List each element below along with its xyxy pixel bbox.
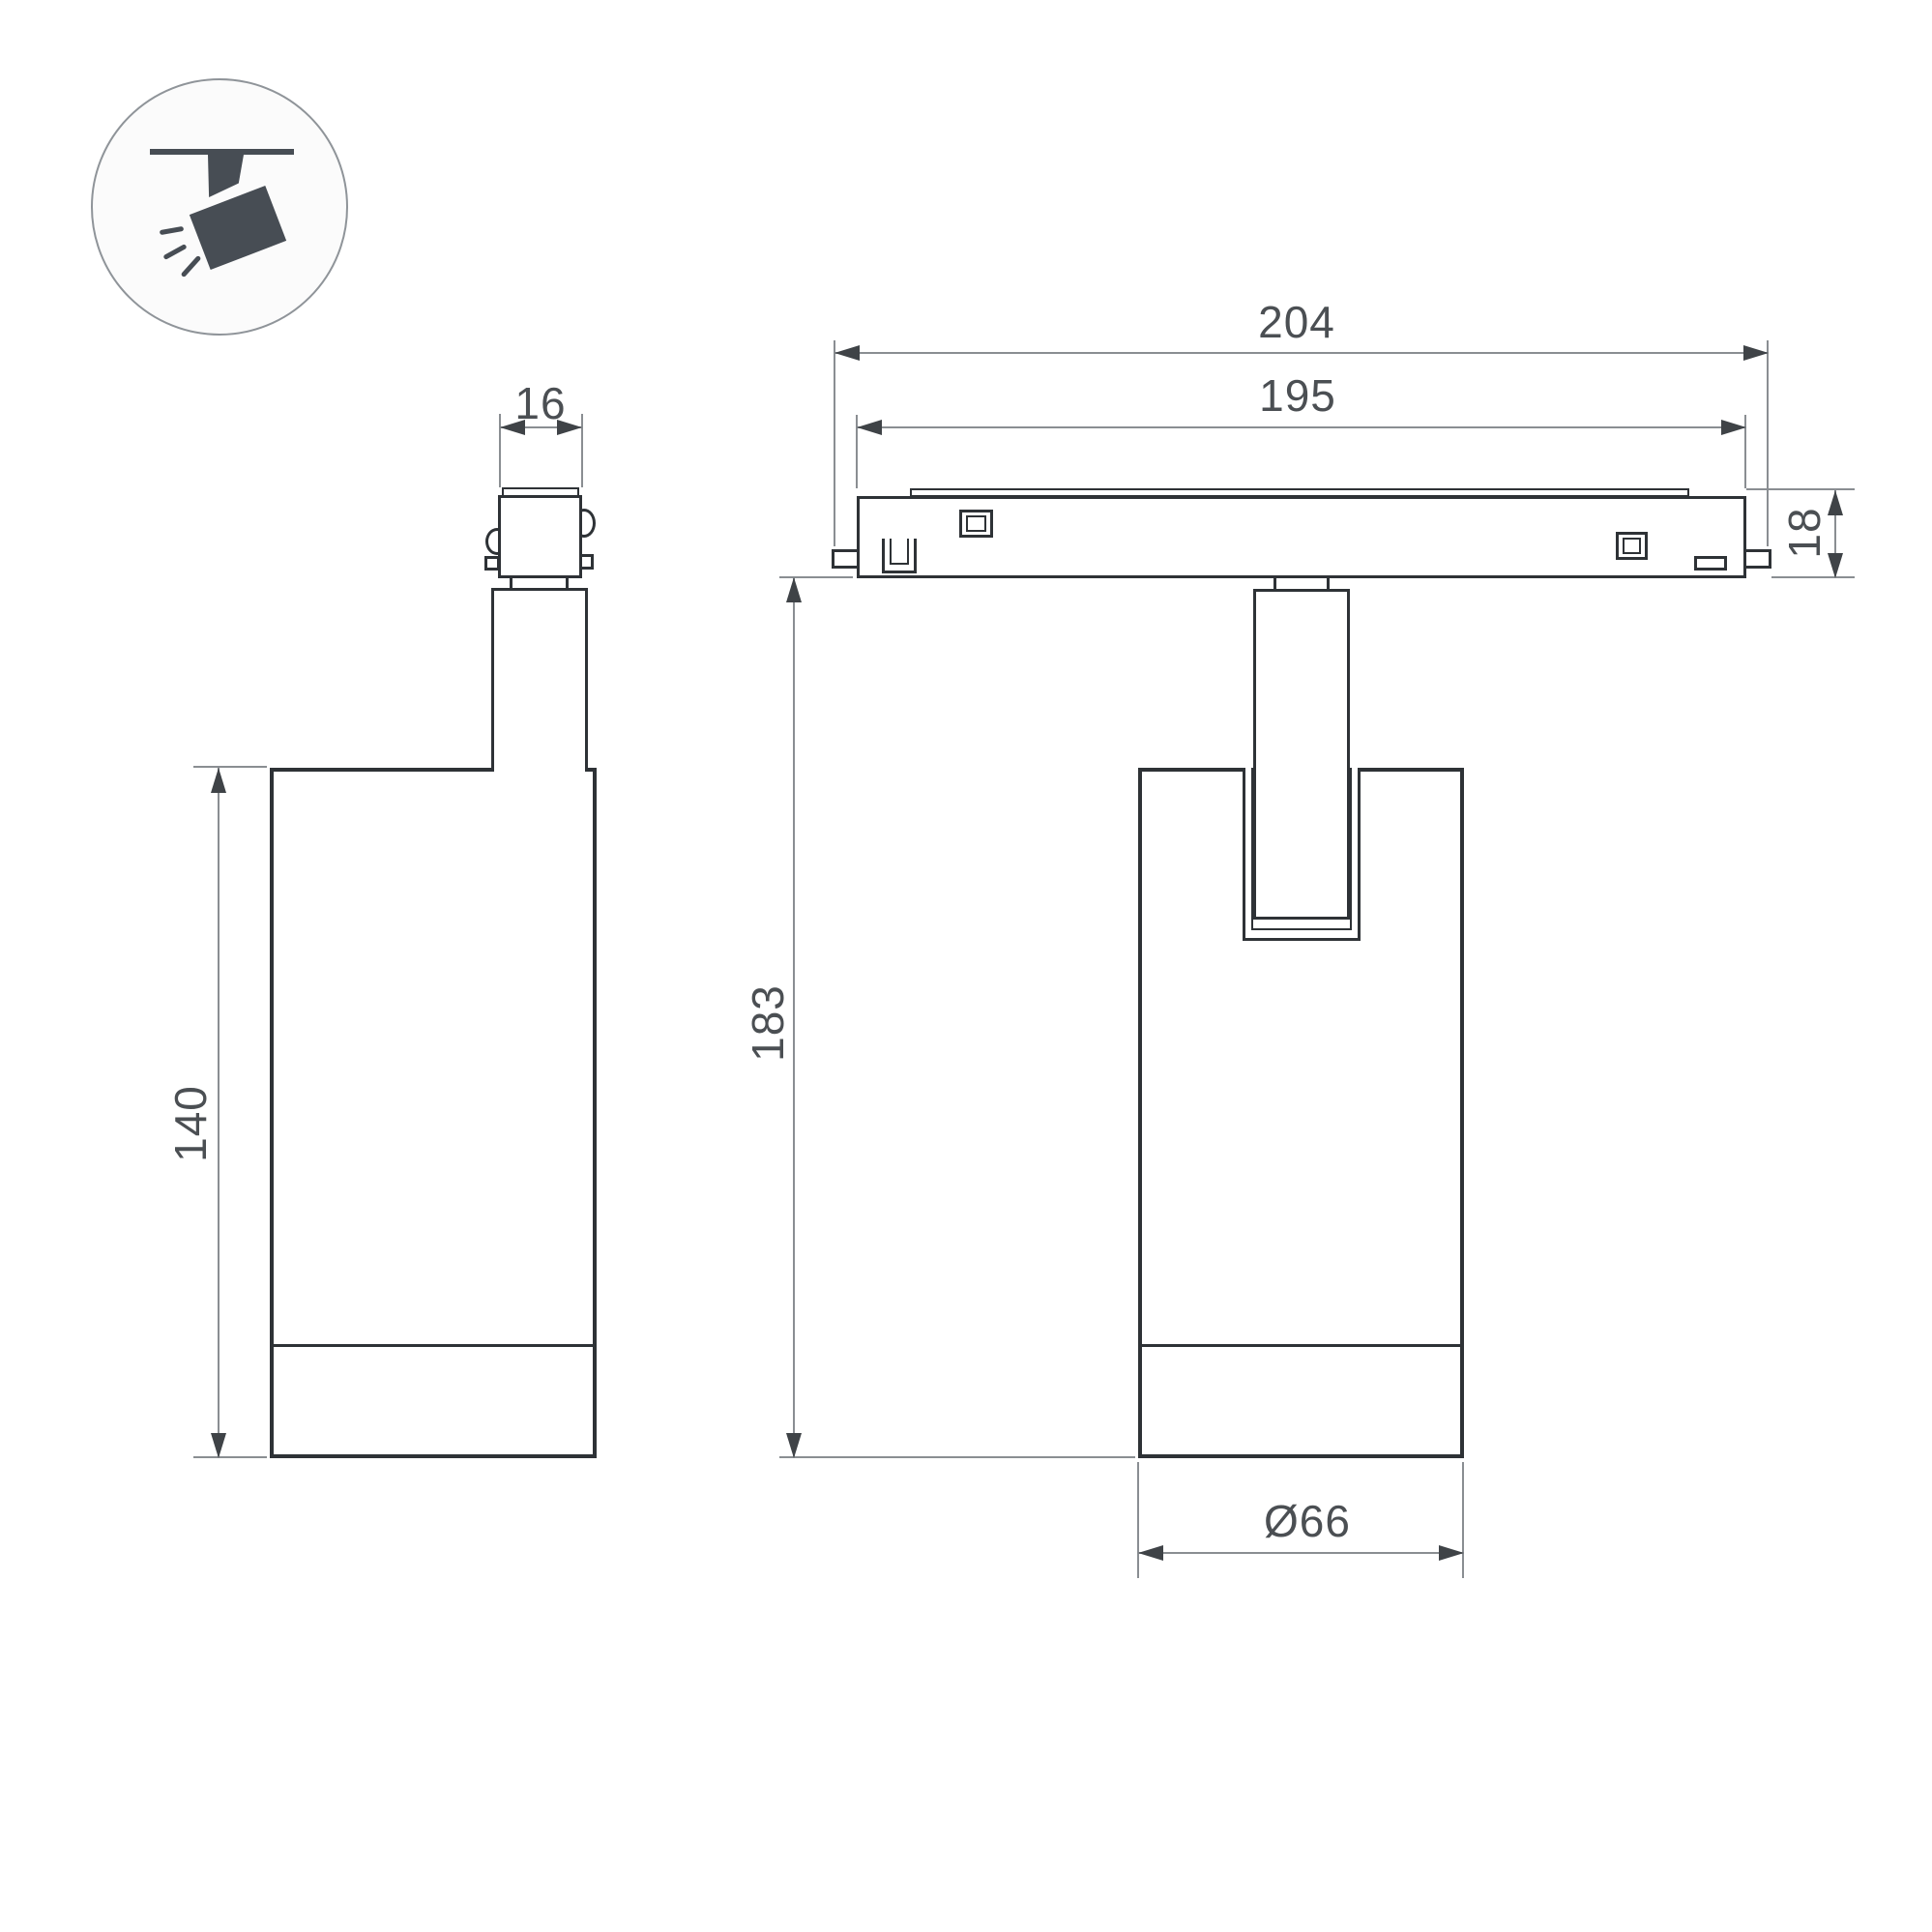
dim-arrow-left-icon xyxy=(834,345,860,361)
dim-label-140: 140 xyxy=(164,1085,217,1162)
body-top-edge xyxy=(270,768,495,772)
dim-label-195: 195 xyxy=(1259,369,1336,422)
track-connector-block xyxy=(498,495,582,578)
extension-line xyxy=(1462,1462,1464,1578)
dim-label-18: 18 xyxy=(1778,507,1830,558)
ceiling-line-icon xyxy=(150,149,294,155)
extension-line xyxy=(834,340,835,546)
swivel-stem-front xyxy=(1253,589,1350,920)
track-clip-detail-inner xyxy=(890,539,909,565)
body-trim-ring-line xyxy=(274,1344,595,1347)
body-top-edge xyxy=(1138,768,1246,772)
extension-line xyxy=(193,1456,267,1458)
dim-arrow-right-icon xyxy=(1439,1545,1464,1561)
lamp-body-side-view xyxy=(270,768,597,1458)
dim-label-16: 16 xyxy=(514,377,566,429)
stem-collar xyxy=(1273,578,1330,591)
dim-arrow-down-icon xyxy=(786,1433,802,1458)
track-window-detail-inner xyxy=(1623,538,1641,554)
dim-arrow-down-icon xyxy=(211,1433,226,1458)
dim-arrow-left-icon xyxy=(857,420,882,435)
extension-line xyxy=(779,1456,1135,1458)
dimension-line xyxy=(834,352,1769,354)
body-trim-ring-line xyxy=(1142,1344,1460,1347)
dim-label-204: 204 xyxy=(1258,296,1335,348)
dim-arrow-up-icon xyxy=(211,768,226,793)
dimension-drawing: 16 140 204 xyxy=(0,0,1932,1932)
dim-arrow-up-icon xyxy=(786,577,802,602)
dimension-line xyxy=(1138,1552,1464,1554)
extension-line xyxy=(193,766,267,768)
extension-line xyxy=(1137,1462,1139,1578)
track-window-detail-inner xyxy=(966,515,986,532)
body-top-edge xyxy=(1357,768,1464,772)
dim-label-diameter-66: Ø66 xyxy=(1264,1495,1351,1547)
track-slot-detail xyxy=(1694,556,1727,571)
dim-arrow-left-icon xyxy=(1138,1545,1163,1561)
dim-arrow-right-icon xyxy=(1721,420,1746,435)
dimension-line xyxy=(218,768,220,1458)
track-end-tab xyxy=(1742,549,1771,569)
swivel-neck-side xyxy=(491,588,588,772)
dim-label-183: 183 xyxy=(742,984,794,1062)
dimension-line xyxy=(857,426,1746,428)
extension-line xyxy=(1767,340,1769,546)
dim-arrow-right-icon xyxy=(1743,345,1769,361)
